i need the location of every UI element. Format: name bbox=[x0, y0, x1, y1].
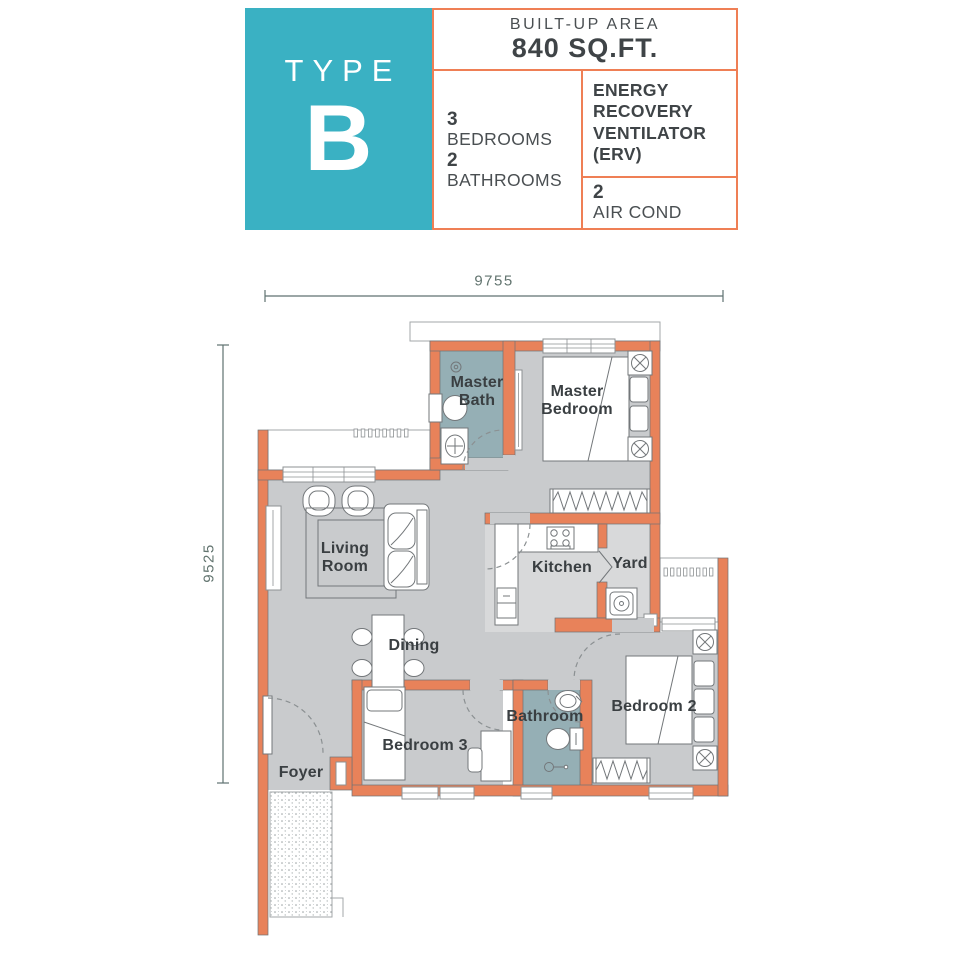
depth-dimension: 9525 bbox=[201, 543, 218, 582]
armchair-icon bbox=[342, 486, 374, 516]
armchair-icon bbox=[303, 486, 335, 516]
floor-plan-page: TYPE B BUILT-UP AREA 840 SQ.FT. 3 BEDROO… bbox=[0, 0, 980, 980]
sofa-icon bbox=[384, 504, 429, 590]
width-dimension: 9755 bbox=[474, 273, 513, 290]
single-bed-icon bbox=[364, 687, 405, 780]
fan-icon bbox=[693, 630, 717, 654]
fan-icon bbox=[628, 437, 652, 461]
toilet-icon bbox=[547, 728, 584, 750]
floor-plan-drawing bbox=[0, 0, 980, 980]
fan-icon bbox=[693, 746, 717, 770]
room-label-living-room: Living Room bbox=[321, 540, 369, 576]
wardrobe-icon bbox=[550, 489, 650, 513]
entry-door-leaf bbox=[263, 696, 272, 754]
fridge-icon bbox=[497, 588, 516, 618]
room-label-bedroom-2: Bedroom 2 bbox=[611, 698, 696, 716]
room-label-bedroom-3: Bedroom 3 bbox=[382, 737, 467, 755]
room-label-kitchen: Kitchen bbox=[532, 559, 592, 577]
room-label-dining: Dining bbox=[389, 637, 440, 655]
fan-icon bbox=[628, 351, 652, 375]
entry-path bbox=[270, 792, 332, 917]
room-label-foyer: Foyer bbox=[279, 764, 324, 782]
room-label-master-bedroom: Master Bedroom bbox=[541, 383, 613, 419]
wardrobe-icon bbox=[593, 758, 650, 783]
sink-icon bbox=[441, 428, 468, 464]
washing-machine-icon bbox=[606, 588, 637, 619]
room-label-master-bath: Master Bath bbox=[451, 374, 504, 410]
room-label-yard: Yard bbox=[612, 555, 648, 573]
room-label-bathroom: Bathroom bbox=[506, 708, 583, 726]
